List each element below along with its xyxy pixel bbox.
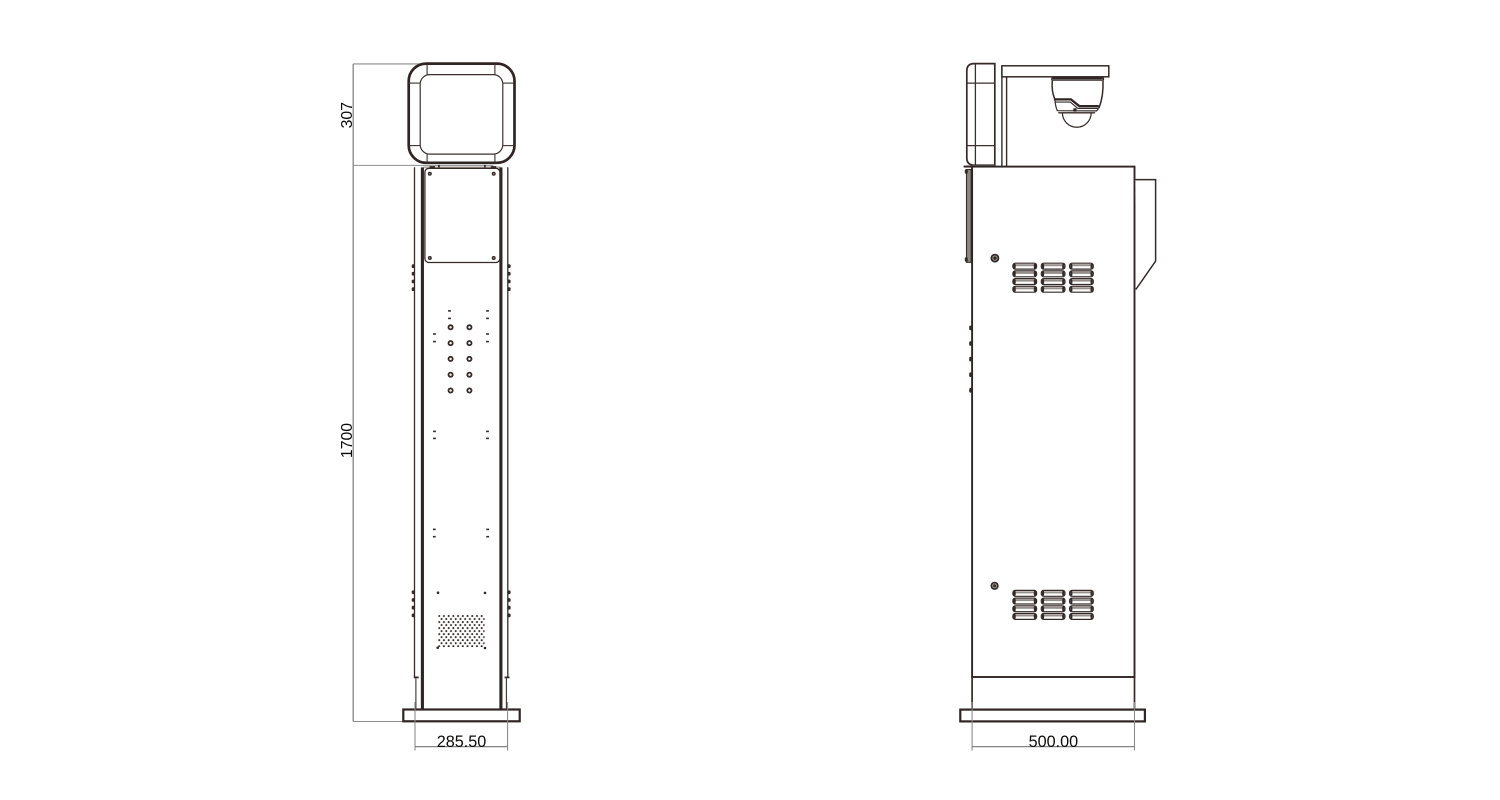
svg-text:307: 307 [339, 102, 356, 128]
svg-text:285.50: 285.50 [437, 733, 487, 751]
svg-text:1700: 1700 [339, 423, 356, 458]
svg-text:500.00: 500.00 [1029, 733, 1079, 751]
